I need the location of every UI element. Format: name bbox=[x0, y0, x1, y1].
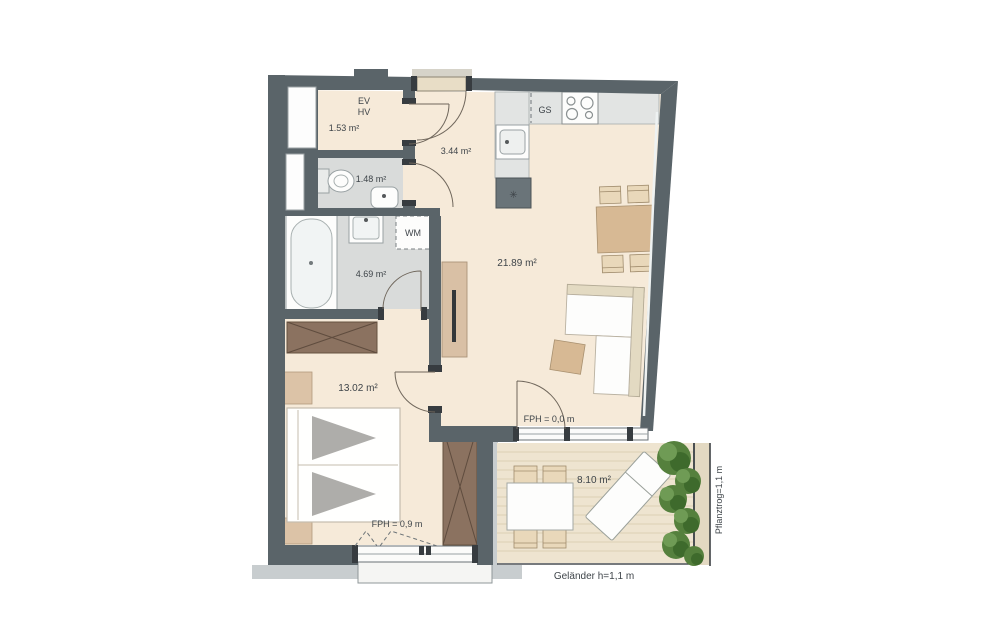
label-hv: HV bbox=[358, 107, 371, 117]
balcony-window-band bbox=[513, 427, 648, 441]
label-fph-balcony: FPH = 0,0 m bbox=[524, 414, 575, 424]
floor-plan-drawing: ✳ bbox=[0, 0, 1000, 641]
balcony bbox=[497, 441, 710, 566]
wall-ev-wc-divider bbox=[310, 150, 403, 158]
dining-table bbox=[596, 205, 656, 253]
bedroom-window-sill bbox=[358, 562, 492, 583]
toilet-icon bbox=[317, 169, 354, 193]
cooktop-icon bbox=[562, 92, 598, 124]
room-area-balcony: 8.10 m² bbox=[577, 475, 612, 486]
label-ev: EV bbox=[358, 96, 370, 106]
room-area-hall: 3.44 m² bbox=[441, 146, 472, 156]
room-area-wc: 1.48 m² bbox=[356, 174, 387, 184]
shaft-symbol-icon: ✳ bbox=[509, 190, 517, 201]
wall-bedroom-bottom bbox=[268, 545, 358, 565]
wall-left bbox=[268, 75, 285, 565]
kitchen-sink-icon bbox=[496, 125, 529, 159]
wall-living-balcony bbox=[429, 426, 517, 442]
shaft: ✳ bbox=[496, 178, 531, 208]
coffee-table bbox=[550, 340, 585, 374]
label-washing-machine: WM bbox=[405, 228, 421, 238]
wall-bath-living-divider bbox=[429, 216, 441, 372]
entrance-door bbox=[411, 69, 472, 91]
room-area-utility: 1.53 m² bbox=[329, 123, 360, 133]
label-railing: Geländer h=1,1 m bbox=[554, 571, 634, 582]
label-fph-bedroom: FPH = 0,9 m bbox=[372, 519, 423, 529]
wall-bedroom-balcony bbox=[477, 426, 493, 565]
wc-sink-icon bbox=[371, 187, 398, 208]
wall-pier bbox=[354, 69, 388, 77]
room-area-bath: 4.69 m² bbox=[356, 269, 387, 279]
balcony-table bbox=[507, 483, 573, 530]
floor-plan-page: ✳ bbox=[0, 0, 1000, 641]
double-bed bbox=[287, 408, 400, 522]
wall-bath-bedroom-divider bbox=[285, 309, 383, 319]
room-area-living: 21.89 m² bbox=[497, 258, 537, 269]
wall-wc-bath-divider bbox=[285, 208, 440, 216]
nightstand bbox=[284, 372, 312, 404]
entrance-door-leaf bbox=[417, 77, 466, 91]
shaft-niche bbox=[286, 154, 304, 210]
room-area-bedroom: 13.02 m² bbox=[338, 383, 378, 394]
plant-icon bbox=[684, 546, 704, 566]
label-dishwasher: GS bbox=[538, 105, 551, 115]
bedroom-window-band bbox=[352, 545, 478, 563]
bathroom-sink-icon bbox=[349, 213, 383, 243]
bathtub-icon bbox=[286, 214, 337, 313]
shaft-niche bbox=[288, 87, 316, 148]
plant-icon bbox=[674, 508, 700, 534]
label-planter: Pflanztrog=1,1 m bbox=[714, 466, 724, 534]
sideboard bbox=[442, 262, 467, 357]
